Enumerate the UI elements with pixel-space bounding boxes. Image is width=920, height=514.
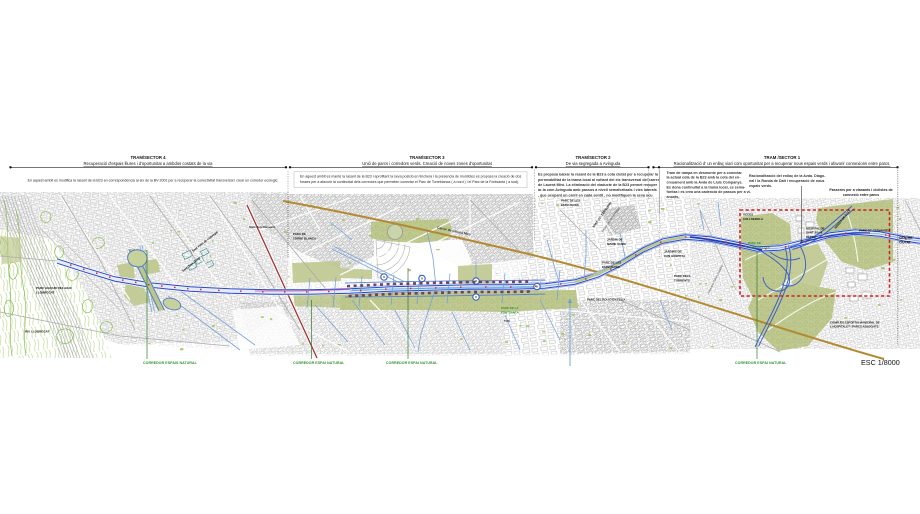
- svg-text:CIUTAT: CIUTAT: [899, 241, 911, 245]
- svg-text:De via segregada a Avinguda: De via segregada a Avinguda: [566, 161, 621, 166]
- svg-text:CORREDOR ESPAI NATURAL: CORREDOR ESPAI NATURAL: [293, 361, 345, 365]
- svg-text:TRAM/SECTOR 3: TRAM/SECTOR 3: [409, 155, 445, 160]
- svg-text:permeabilitat de la trama loca: permeabilitat de la trama local al volta…: [538, 178, 660, 182]
- svg-text:connexió entre parcs: connexió entre parcs: [843, 193, 879, 197]
- svg-text:Recuperació d'espais lliures i: Recuperació d'espais lliures i d'oportun…: [84, 161, 214, 166]
- svg-text:CAN HOSPITAL: CAN HOSPITAL: [664, 254, 686, 258]
- svg-text:En aquest ambit es modifica la: En aquest ambit es modifica la rasant de…: [28, 179, 279, 183]
- svg-text:TRAM/SECTOR 2: TRAM/SECTOR 2: [575, 155, 611, 160]
- svg-text:Tram de rampa en desmonte per: Tram de rampa en desmonte per a conectar: [667, 171, 743, 175]
- svg-text:COLLSEROLA: COLLSEROLA: [743, 217, 764, 221]
- svg-text:TORRE BLANCA: TORRE BLANCA: [293, 236, 317, 240]
- svg-text:FONTSANTA: FONTSANTA: [501, 310, 520, 314]
- svg-text:LLOBREGAT: LLOBREGAT: [36, 290, 55, 294]
- svg-text:PARC DEL POU D’EN FELIX: PARC DEL POU D’EN FELIX: [587, 298, 625, 302]
- svg-text:creuament amb la Avda de Lluis: creuament amb la Avda de Lluis Companys.: [667, 181, 743, 185]
- svg-text:TRAM /SECTOR 1: TRAM /SECTOR 1: [764, 155, 801, 160]
- svg-text:Racionalització del enllaç de: Racionalització del enllaç de la Avda. D…: [749, 174, 826, 178]
- svg-text:la actual cota de la B23 amb l: la actual cota de la B23 amb la cota del…: [667, 176, 742, 180]
- svg-text:TORRENTS: TORRENTS: [674, 278, 690, 282]
- svg-text:DEDEU: DEDEU: [806, 235, 816, 239]
- svg-text:Sant Just Desvern: Sant Just Desvern: [249, 225, 275, 229]
- svg-text:ESPLUGUES: ESPLUGUES: [602, 265, 620, 269]
- svg-text:MARIE CURIE: MARIE CURIE: [607, 242, 626, 246]
- svg-text:Es proposa baixar la rasant de: Es proposa baixar la rasant de la B23 a …: [538, 173, 659, 177]
- svg-text:CORREDOR ESPAI NATURAL: CORREDOR ESPAI NATURAL: [386, 361, 438, 365]
- svg-text:ESC 1/8000: ESC 1/8000: [861, 358, 900, 367]
- svg-text:Es dona continuitat a la trama: Es dona continuitat a la trama local, es…: [667, 185, 746, 189]
- svg-text:CORREDOR ESPAI NATURAL: CORREDOR ESPAI NATURAL: [735, 361, 787, 365]
- svg-text:Racionalització d' un enllaç v: Racionalització d' un enllaç viari com o…: [674, 161, 891, 166]
- svg-text:nal i la Ronda de Dalt i recup: nal i la Ronda de Dalt i recuperació de …: [749, 179, 824, 183]
- svg-text:Passeres per a vianants i cicl: Passeres per a vianants i ciclistes de: [829, 188, 892, 192]
- svg-text:En aquest ambit es mantè la ra: En aquest ambit es mantè la rasant de la…: [300, 175, 521, 179]
- svg-text:CENTRE: CENTRE: [899, 236, 913, 240]
- svg-text:TV3: TV3: [504, 319, 510, 323]
- svg-text:ar-la com Avinguda amb passos: ar-la com Avinguda amb passos a nivell s…: [538, 188, 657, 192]
- svg-text:Unió de parcs i corredors verd: Unió de parcs i corredors verds. Creació…: [362, 161, 492, 166]
- svg-text:fosses per a afavorir la conti: fosses per a afavorir la continuitat del…: [300, 180, 519, 184]
- svg-text:ESPLUGUES: ESPLUGUES: [561, 203, 579, 207]
- svg-text:foritza i es crea una cadencia: foritza i es crea una cadencia de passos…: [667, 190, 752, 194]
- svg-text:FINESTRELLES: FINESTRELLES: [748, 245, 770, 249]
- svg-text:CORREDOR ESPAIS NATURAL: CORREDOR ESPAIS NATURAL: [143, 361, 198, 365]
- svg-text:PARC DE CERVANTES: PARC DE CERVANTES: [859, 229, 890, 233]
- svg-text:espais verds.: espais verds.: [749, 184, 772, 188]
- svg-text:RIU LLOBREGAT: RIU LLOBREGAT: [25, 330, 50, 334]
- svg-text:de Laureà Miró. La eliminació: de Laureà Miró. La eliminació del viaduc…: [538, 183, 658, 187]
- svg-text:TRAM/SECTOR 4: TRAM/SECTOR 4: [130, 155, 166, 160]
- svg-text:L’HOSPITALET I PARCS ASSOCIATS: L’HOSPITALET I PARCS ASSOCIATS: [830, 325, 879, 329]
